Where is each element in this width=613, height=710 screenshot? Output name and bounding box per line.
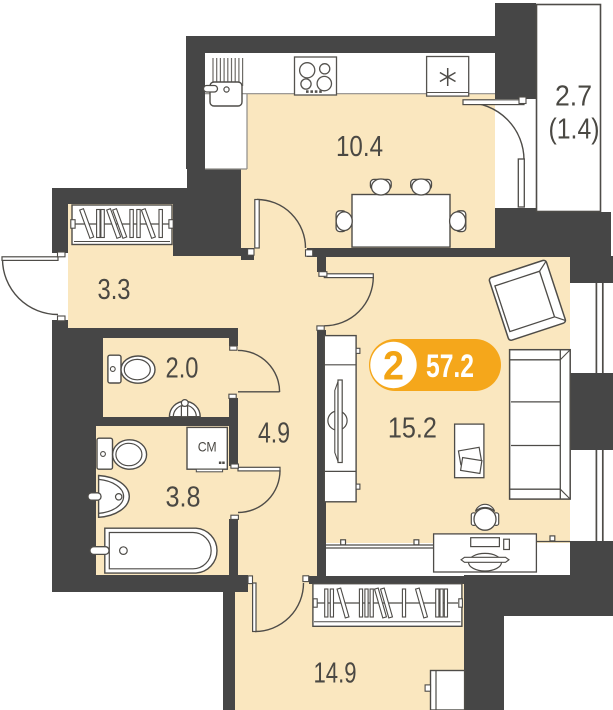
- svg-text:3.3: 3.3: [98, 274, 131, 306]
- svg-text:4.9: 4.9: [258, 418, 290, 450]
- svg-text:2: 2: [383, 343, 404, 389]
- svg-text:57.2: 57.2: [426, 348, 474, 384]
- svg-text:(1.4): (1.4): [549, 114, 600, 146]
- svg-text:15.2: 15.2: [388, 413, 437, 445]
- svg-text:2.7: 2.7: [555, 81, 592, 113]
- svg-text:СМ: СМ: [198, 439, 217, 455]
- svg-text:14.9: 14.9: [314, 658, 357, 690]
- svg-text:2.0: 2.0: [166, 353, 199, 385]
- svg-text:10.4: 10.4: [336, 131, 383, 163]
- svg-text:3.8: 3.8: [166, 482, 201, 514]
